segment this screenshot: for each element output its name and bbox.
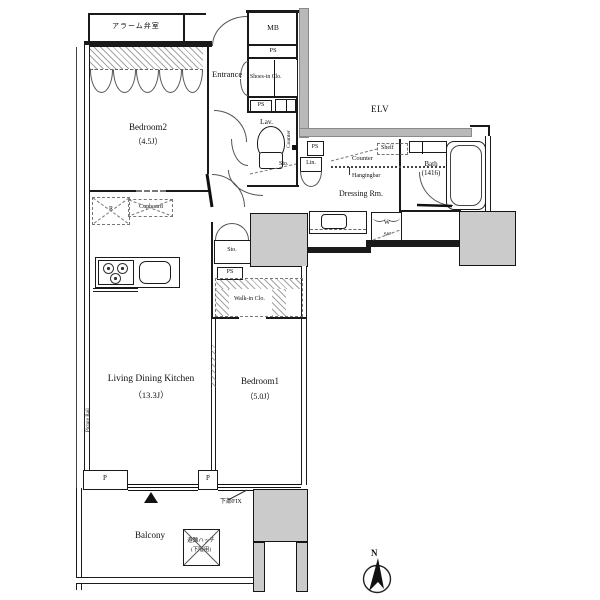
svg-text:N: N — [371, 548, 378, 558]
ps-label: PS — [312, 144, 319, 151]
bedroom1-label: Bedroom1 — [241, 376, 279, 386]
ldk-size-label: （13.3J） — [133, 391, 168, 401]
wall — [470, 125, 490, 127]
wall-thick — [303, 247, 371, 253]
shoes-in-closet-label: Shoes-in Clo. — [250, 74, 282, 81]
ps-label: PS — [269, 47, 276, 54]
bathtub-inner — [450, 145, 482, 206]
bath-counter — [409, 141, 447, 153]
entrance-label: Entrance — [212, 70, 242, 80]
alarm-room-label: アラーム弁室 — [112, 22, 160, 30]
balcony-partition — [253, 489, 308, 542]
balcony-railing — [76, 577, 256, 584]
ps-label: PS — [227, 269, 234, 276]
closet-hanger-band — [90, 47, 203, 70]
hanging-bar-tick — [349, 167, 350, 175]
closet-scallop — [182, 70, 203, 93]
partition-wall — [211, 319, 216, 485]
entry-marker-triangle — [144, 492, 158, 503]
floor-plan: アラーム弁室 MB PS Shoes-in Clo. PS Entrance L… — [0, 0, 600, 600]
structural-column — [250, 213, 308, 267]
closet-scallop — [159, 70, 182, 93]
wall-thick — [369, 240, 464, 247]
ldk-label: Living Dining Kitchen — [108, 374, 195, 385]
balcony-label: Balcony — [135, 530, 165, 540]
structural-column — [459, 211, 516, 266]
compass-icon: N — [356, 546, 400, 598]
counter-return — [93, 288, 138, 292]
corridor-wall — [299, 8, 309, 138]
ps-label: PS — [258, 102, 265, 109]
walk-in-closet-label: Walk-in Clo. — [233, 296, 266, 303]
lav-storage-label: Sto. — [279, 161, 289, 168]
door-arc — [311, 171, 322, 187]
closet-scallop — [90, 70, 113, 93]
wall — [88, 13, 90, 44]
dressing-room-label: Dressing Rm. — [339, 189, 383, 198]
bedroom2-size-label: （4.5J） — [133, 137, 162, 146]
fix-window — [218, 484, 248, 491]
wall — [207, 46, 209, 174]
wall-opening-dashed — [136, 190, 166, 192]
balcony-partition-leg — [253, 542, 265, 592]
door-arc — [300, 171, 311, 187]
pillar-label: P — [103, 474, 107, 482]
stove-burner — [103, 263, 114, 274]
bedroom1-size-label: （5.0J） — [245, 392, 274, 401]
balcony-wall — [76, 488, 82, 590]
hangingbar-label: Hangingbar — [352, 173, 380, 180]
picture-rail-label: Picture Rail — [86, 408, 92, 432]
wic-hanger-hatch — [216, 279, 302, 289]
bedroom2-label: Bedroom2 — [129, 122, 167, 132]
wall — [247, 44, 298, 46]
cupboard-label: Cupboard — [138, 204, 164, 211]
dressing-counter-label: Counter — [352, 155, 373, 162]
stove-burner — [117, 263, 128, 274]
evacuation-hatch-label: 避難ハッチ — [186, 538, 216, 544]
kitchen-sink — [139, 261, 171, 284]
shelf-label: Shelf — [381, 145, 394, 152]
wall — [266, 317, 307, 319]
counter-dot — [292, 145, 297, 150]
mb-label: MB — [267, 24, 279, 33]
lav-door-arc — [231, 139, 248, 166]
door-arc — [232, 223, 249, 240]
fix-label: 下部FIX — [220, 499, 242, 506]
bath-door-arc — [419, 172, 453, 206]
evacuation-hatch-sublabel: (下階用) — [190, 547, 212, 553]
bath-label: Bath — [424, 160, 437, 168]
washbasin-sink — [321, 214, 347, 229]
door-arc — [214, 110, 247, 142]
wic-hanger-hatch — [272, 289, 286, 316]
partition-hatch — [211, 345, 216, 389]
wall — [84, 190, 136, 192]
closet-scallop — [113, 70, 136, 93]
wall — [247, 57, 298, 59]
linen-label: Lin. — [306, 160, 316, 167]
wall — [183, 13, 185, 44]
wall — [88, 13, 206, 15]
stove-burner — [110, 273, 121, 284]
wall — [166, 190, 210, 192]
door-arc — [240, 79, 248, 96]
counter-edge — [310, 229, 366, 230]
wall — [399, 210, 461, 212]
entry-door-arc — [212, 16, 247, 46]
washer-label: W — [384, 219, 390, 226]
pillar-label: P — [206, 474, 210, 482]
elv-label: ELV — [371, 104, 389, 114]
wic-hanger-hatch — [216, 289, 229, 316]
ldk-window — [128, 484, 198, 491]
corridor-wall — [299, 128, 472, 137]
door-arc — [215, 223, 232, 240]
hall-storage-label: Sto. — [227, 247, 237, 254]
meter-box — [275, 99, 296, 112]
wall — [247, 96, 298, 98]
balcony-partition-leg — [296, 542, 308, 592]
wall — [211, 222, 213, 319]
refrigerator-label: R — [108, 206, 114, 213]
closet-scallop — [136, 70, 159, 93]
